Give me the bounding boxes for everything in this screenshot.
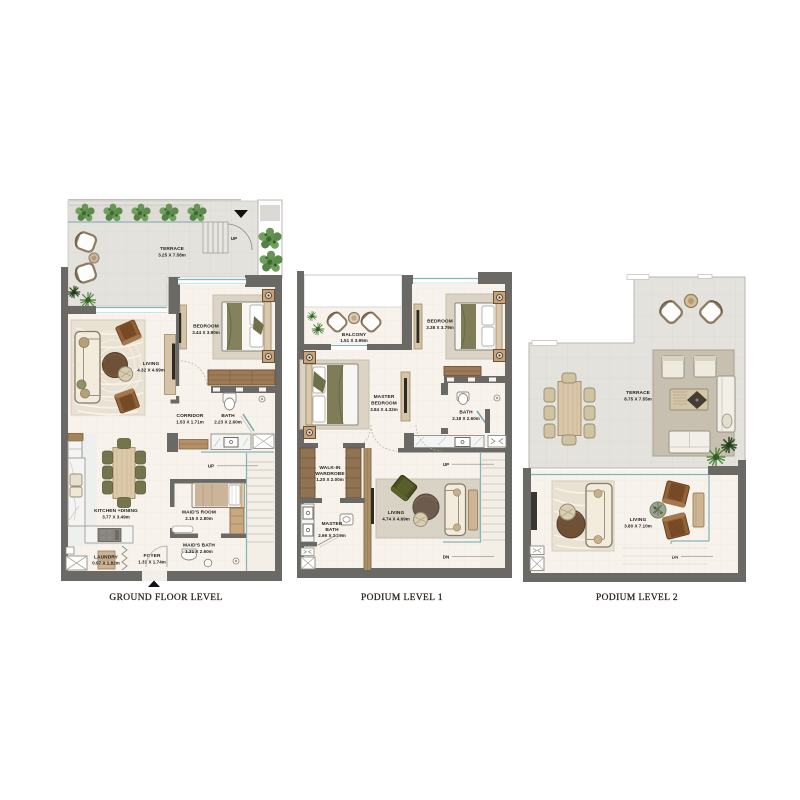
svg-text:MAID'S ROOM: MAID'S ROOM [182,510,216,516]
svg-text:3.25 X 7.58m: 3.25 X 7.58m [158,253,186,258]
svg-text:8.75 X 7.55m: 8.75 X 7.55m [624,397,652,402]
svg-text:BATH: BATH [221,413,235,419]
svg-text:MAID'S BATH: MAID'S BATH [183,543,215,549]
svg-text:MASTER: MASTER [374,394,395,400]
svg-text:BATH: BATH [459,410,473,416]
svg-text:2.23 X 2.60m: 2.23 X 2.60m [214,420,242,425]
svg-text:3.44 X 3.90m: 3.44 X 3.90m [192,330,220,335]
svg-text:2.18 X 2.60m: 2.18 X 2.60m [452,416,480,421]
svg-text:4.32 X 4.69m: 4.32 X 4.69m [137,368,165,373]
svg-text:DN: DN [672,555,679,560]
svg-text:DN: DN [443,555,450,560]
svg-text:3.80 X 7.10m: 3.80 X 7.10m [624,524,652,529]
svg-text:3.77 X 3.49m: 3.77 X 3.49m [102,515,130,520]
svg-text:LIVING: LIVING [630,517,647,523]
svg-text:4.74 X 4.69m: 4.74 X 4.69m [382,517,410,522]
svg-text:TERRACE: TERRACE [160,246,185,252]
svg-text:WALK-IN: WALK-IN [319,465,341,471]
svg-text:2.15 X 2.80m: 2.15 X 2.80m [185,516,213,521]
svg-text:1.51 X 3.95m: 1.51 X 3.95m [340,338,368,343]
svg-text:CORRIDOR: CORRIDOR [177,413,204,419]
svg-text:BEDROOM: BEDROOM [427,319,453,325]
svg-text:0.97 X 1.82m: 0.97 X 1.82m [92,561,120,566]
svg-text:BEDROOM: BEDROOM [193,324,219,330]
svg-text:1.53 X 1.71m: 1.53 X 1.71m [176,420,204,425]
svg-text:PODIUM LEVEL 1: PODIUM LEVEL 1 [361,593,443,603]
svg-text:PODIUM LEVEL 2: PODIUM LEVEL 2 [596,593,678,603]
svg-text:1.21 X 2.60m: 1.21 X 2.60m [185,549,213,554]
svg-text:3.38 X 3.79m: 3.38 X 3.79m [426,325,454,330]
svg-text:UP: UP [231,236,237,241]
svg-text:LIVING: LIVING [143,361,160,367]
svg-text:GROUND FLOOR LEVEL: GROUND FLOOR LEVEL [109,593,222,603]
svg-text:1.31 X 1.74m: 1.31 X 1.74m [138,560,166,565]
svg-text:UP: UP [208,464,214,469]
svg-text:3.84 X 4.32m: 3.84 X 4.32m [370,407,398,412]
svg-text:UP: UP [443,462,449,467]
svg-text:1.20 X 2.00m: 1.20 X 2.00m [316,477,344,482]
svg-text:TERRACE: TERRACE [626,390,651,396]
svg-text:MASTER: MASTER [322,521,343,527]
svg-text:BEDROOM: BEDROOM [371,401,397,407]
svg-text:FOYER: FOYER [143,553,160,559]
svg-text:KITCHEN +DINING: KITCHEN +DINING [94,508,138,514]
svg-text:LIVING: LIVING [388,510,405,516]
